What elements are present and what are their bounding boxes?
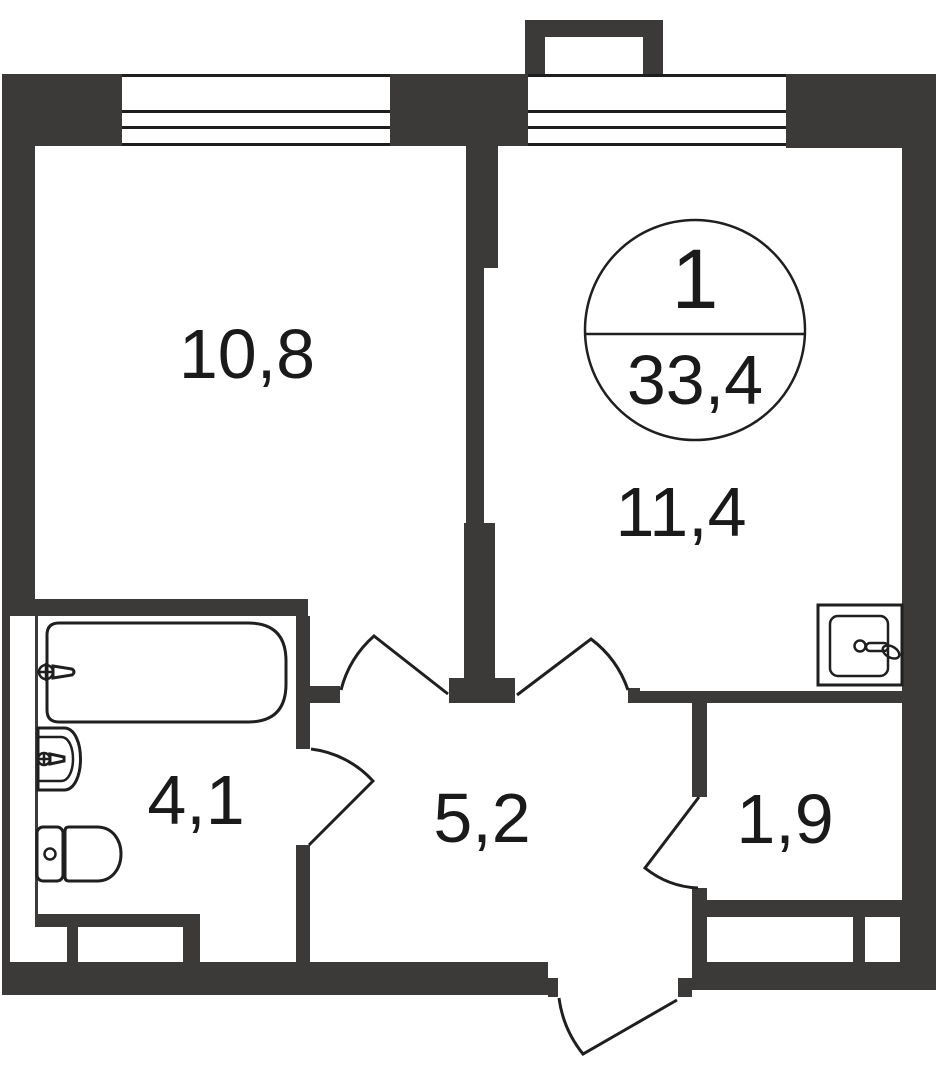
- floor-plan: 1 33,4 10,8 11,4 4,1 5,2 1,9: [0, 0, 936, 1080]
- unit-number: 1: [672, 232, 719, 326]
- room-label-bathroom: 4,1: [147, 761, 244, 839]
- room-label-hallway: 5,2: [433, 779, 530, 857]
- wall-top-right: [786, 74, 936, 148]
- unit-info-circle: 1 33,4: [585, 220, 805, 440]
- door-room-top-right: [517, 639, 628, 695]
- wall-protrusion-top: [525, 20, 663, 37]
- wall-bathroom-top: [2, 599, 308, 616]
- wall-right: [902, 146, 936, 990]
- wall-bathroom-right-upper: [296, 616, 310, 749]
- wash-basin: [37, 728, 81, 790]
- room-label-top-right: 11,4: [615, 473, 746, 551]
- shaft-opening-right-2: [865, 917, 900, 962]
- wall-interroom-bottom: [464, 523, 495, 680]
- shaft-divider-right: [183, 927, 200, 962]
- wall-top-middle: [390, 74, 528, 146]
- wall-hall-jamb: [628, 688, 640, 703]
- door-room-top-left: [341, 636, 448, 694]
- wall-interroom-foot: [449, 678, 515, 703]
- wall-interroom-top: [466, 146, 498, 268]
- wall-protrusion-left: [525, 37, 545, 74]
- wall-entrance-jamb-right: [678, 978, 692, 997]
- wall-bottom-left: [2, 962, 548, 995]
- toilet-tank: [37, 827, 63, 881]
- shaft-divider-left: [67, 927, 78, 962]
- wall-hall-stub: [310, 686, 340, 703]
- toilet: [37, 827, 121, 881]
- wall-protrusion-right: [643, 37, 663, 74]
- wall-left-lower: [2, 616, 10, 962]
- floor-plan-canvas: 1 33,4 10,8 11,4 4,1 5,2 1,9: [0, 0, 936, 1080]
- wall-storage-left-upper: [692, 703, 707, 797]
- window-top-right: [528, 76, 786, 145]
- window-top-left: [122, 76, 390, 145]
- kitchen-sink: [818, 605, 902, 685]
- room-label-storage: 1,9: [736, 780, 833, 858]
- room-label-top-left: 10,8: [179, 315, 315, 393]
- wall-bathroom-right-lower: [296, 845, 310, 962]
- door-entrance: [559, 998, 677, 1054]
- door-storage: [645, 797, 699, 888]
- wall-entrance-jamb-left: [548, 978, 558, 997]
- toilet-bowl: [65, 827, 121, 881]
- wall-bathroom-bottom: [35, 914, 200, 927]
- door-bathroom: [309, 749, 373, 845]
- wall-hall-right: [640, 691, 902, 703]
- wall-left-upper: [2, 74, 35, 599]
- shaft-opening-right-1: [707, 917, 853, 962]
- unit-total-area: 33,4: [627, 341, 763, 419]
- bathtub: [37, 623, 286, 722]
- wall-interroom-mid: [466, 268, 484, 523]
